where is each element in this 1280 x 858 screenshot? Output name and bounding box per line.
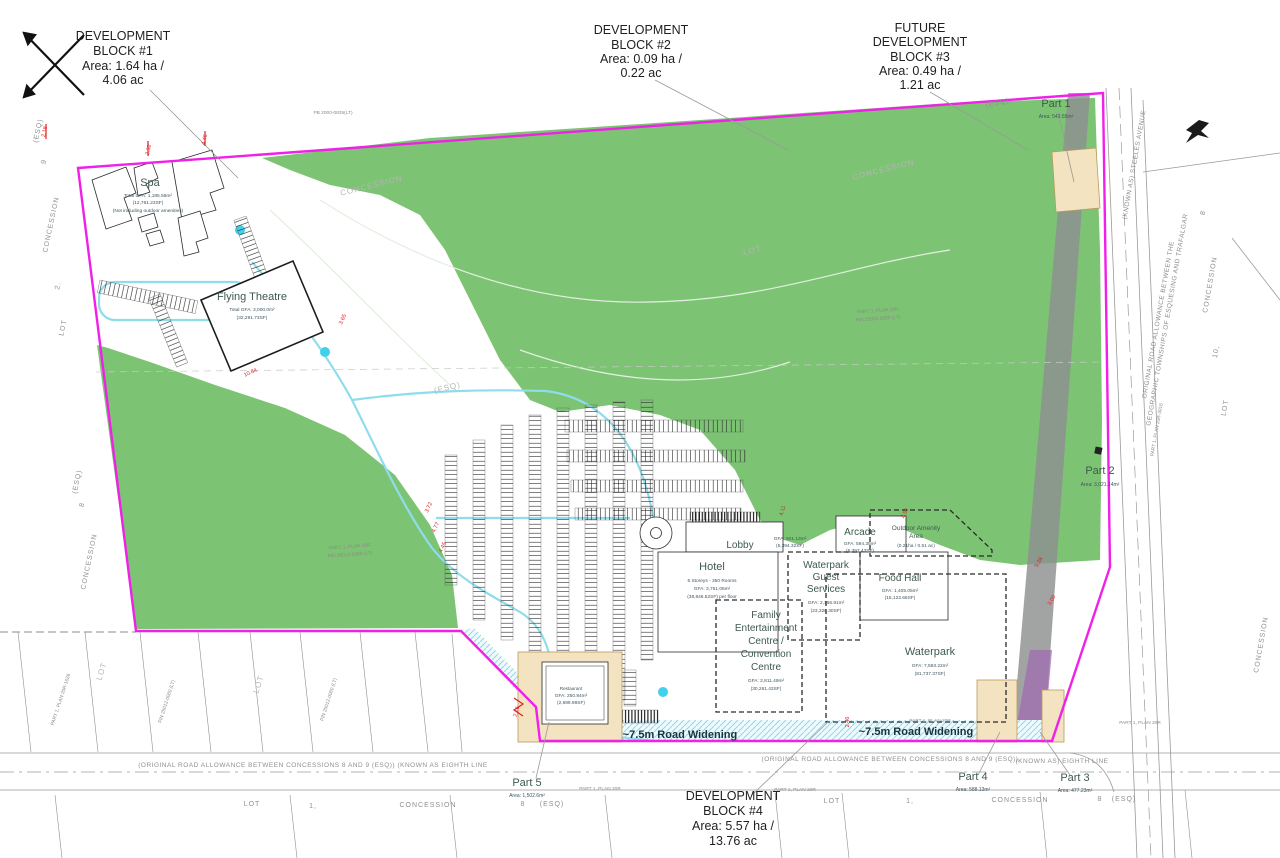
fec-gfa1: GFA: 2,811.49m² (748, 678, 785, 684)
arcade-gfa1: GFA: 594.35m² (844, 541, 877, 547)
road-allowance-label-left: (ORIGINAL ROAD ALLOWANCE BETWEEN CONCESS… (138, 762, 488, 769)
survey-label-bottom: 8 (1098, 796, 1103, 803)
wgs-gfa2: (23,326.30SF) (811, 608, 842, 614)
food-hall-gfa2: (15,123.66SF) (885, 595, 916, 601)
outdoor-amenity-area: (0.21ha / 0.51 ac) (897, 543, 935, 549)
road-allowance-label-right: (ORIGINAL ROAD ALLOWANCE BETWEEN CONCESS… (762, 756, 1019, 763)
lobby-gfa1: GFA: 501.13m² (774, 536, 807, 542)
restaurant-building (542, 662, 608, 724)
survey-label-bottom: 8 (521, 801, 526, 808)
spa-gfa1: Total GFA: 1,185.55m² (124, 193, 172, 199)
part2-label: Part 2 (1085, 465, 1114, 477)
lobby-gfa2: (5,394.32SF) (776, 543, 804, 549)
survey-label-bottom: LOT (244, 801, 261, 808)
block3-line3: BLOCK #3 (890, 50, 950, 64)
block3-line2: DEVELOPMENT (873, 35, 968, 49)
hotel-line2: GFA: 3,751.06m² (694, 586, 731, 592)
road-widening-label-right: ~7.5m Road Widening (859, 726, 974, 738)
block4-line1: DEVELOPMENT (686, 789, 781, 803)
block2-line3: Area: 0.09 ha / (600, 52, 683, 66)
hydrant-marker (320, 347, 330, 357)
block2-line2: BLOCK #2 (611, 38, 671, 52)
survey-label-bottom: (ESQ) (1112, 796, 1136, 803)
survey-label-bottom: (ESQ) (540, 801, 564, 808)
part5-label: Part 5 (512, 777, 541, 789)
block4-line3: Area: 5.57 ha / (692, 819, 775, 833)
fec-label3: Centre / (748, 636, 784, 647)
part1-label: Part 1 (1041, 98, 1070, 110)
arcade-label: Arcade (844, 527, 876, 538)
hotel-line3: (38,846.52SF) per floor (687, 594, 737, 600)
block4-line2: BLOCK #4 (703, 804, 763, 818)
fec-gfa2: (30,261.43SF) (751, 686, 782, 692)
site-plan-canvas: DEVELOPMENT BLOCK #1 Area: 1.64 ha / 4.0… (0, 0, 1280, 858)
fec-label2: Entertainment (735, 623, 797, 634)
part5-area: Area: 1,502.6m² (509, 793, 545, 799)
hydrant-marker (658, 687, 668, 697)
outdoor-amenity-label2: Area (909, 533, 923, 540)
block1-line2: BLOCK #1 (93, 44, 153, 58)
plan-reference-label: PART 1, PLAN 20R (909, 718, 951, 724)
monument-marker (1094, 446, 1102, 454)
road-widening-label-left: ~7.5m Road Widening (623, 729, 738, 741)
hotel-label: Hotel (699, 561, 725, 573)
survey-label-bottom: 1, (906, 798, 914, 805)
flying-theatre-gfa1: Total GFA: 3,000.0m² (229, 307, 275, 313)
food-hall-building (860, 552, 948, 620)
lobby-label: Lobby (726, 540, 753, 551)
plan-reference-label: PART 1, PLAN 20R (774, 787, 816, 793)
spa-label: Spa (140, 177, 160, 189)
site-plan-drawing: DEVELOPMENT BLOCK #1 Area: 1.64 ha / 4.0… (0, 0, 1280, 858)
roundabout (640, 517, 672, 549)
spa-gfa3: (Not including outdoor amenities) (113, 208, 184, 214)
flying-theatre-gfa2: (32,291.73SF) (237, 315, 268, 321)
wgs-gfa1: GFA: 2,166.91m² (808, 600, 845, 606)
part1-parcel (1052, 148, 1100, 212)
part4-parcel (977, 680, 1017, 742)
restaurant-gfa1: GFA: 250.84m² (555, 693, 588, 699)
block2-line4: 0.22 ac (620, 66, 661, 80)
plan-reference-label: PART 1, PLAN 20R (1119, 720, 1161, 726)
block1-line1: DEVELOPMENT (76, 29, 171, 43)
flying-theatre-label: Flying Theatre (217, 291, 287, 303)
survey-label-bottom: CONCESSION (399, 802, 456, 809)
wgs-label2: Guest (813, 572, 840, 583)
waterpark-label: Waterpark (905, 646, 956, 658)
restaurant-label: Restaurant (560, 686, 583, 691)
dimension-label: 2.46 (845, 717, 851, 728)
block1-line4: 4.06 ac (102, 73, 143, 87)
outdoor-amenity-label1: Outdoor Amenity (892, 525, 941, 532)
food-hall-gfa1: GFA: 1,405.05m² (882, 588, 919, 594)
part3-label: Part 3 (1060, 772, 1089, 784)
restaurant-gfa2: (2,699.98SF) (557, 700, 585, 706)
survey-label-bottom: 1, (309, 803, 317, 810)
arcade-gfa2: (6,397.43SF) (846, 548, 874, 554)
part3-area: Area: 477.23m² (1058, 788, 1093, 794)
wgs-label3: Services (807, 584, 845, 595)
block2-line1: DEVELOPMENT (594, 23, 689, 37)
eighth-line-label: (KNOWN AS) EIGHTH LINE (1016, 758, 1109, 765)
wgs-label1: Waterpark (803, 560, 850, 571)
plan-reference-label: PART 1, PLAN 20R (579, 786, 621, 792)
survey-label-bottom: CONCESSION (991, 797, 1048, 804)
block3-line1: FUTURE (895, 21, 946, 35)
block4-line4: 13.76 ac (709, 834, 757, 848)
block1-line3: Area: 1.64 ha / (82, 59, 165, 73)
fec-label5: Centre (751, 662, 781, 673)
block3-line5: 1.21 ac (899, 78, 940, 92)
part4-label: Part 4 (958, 771, 987, 783)
block3-line4: Area: 0.49 ha / (879, 64, 962, 78)
survey-label-bottom: LOT (824, 798, 841, 805)
hotel-line1: 6 Storeys - 350 Rooms (687, 578, 737, 584)
part4-area: Area: 588.13m² (956, 787, 991, 793)
food-hall-label: Food Hall (879, 573, 922, 584)
fec-label4: Convention (741, 649, 792, 660)
fec-label1: Family (751, 610, 780, 621)
spa-gfa2: (12,761.23SF) (133, 200, 164, 206)
plan-reference-label: PB 2000-0835(LT) (313, 110, 353, 116)
waterpark-gfa1: GFA: 7,593.22m² (912, 663, 949, 669)
part1-area: Area: 543.55m² (1039, 114, 1074, 120)
waterpark-gfa2: (81,737.37SF) (915, 671, 946, 677)
part2-area: Area: 3,021.14m² (1081, 482, 1120, 488)
